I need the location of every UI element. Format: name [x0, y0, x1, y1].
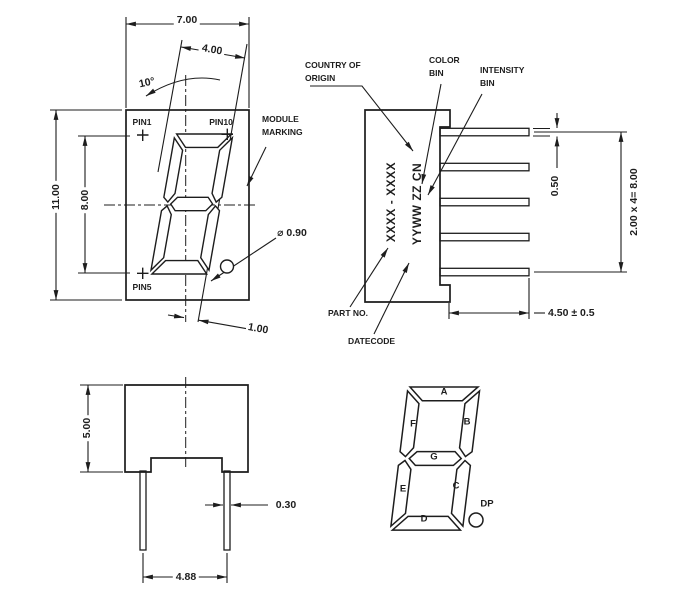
side-pin-3	[440, 198, 529, 206]
segment-c-shape	[450, 461, 471, 527]
dim-4-50	[449, 278, 545, 319]
segment-d-label: D	[421, 514, 428, 524]
dim-pitch	[534, 132, 627, 272]
segment-e-label: E	[400, 484, 406, 494]
front-dp-circle	[221, 260, 234, 273]
side-pins	[440, 128, 529, 275]
front-segment-d	[152, 261, 209, 274]
pin-length-dim-label: 4.50 ± 0.5	[548, 308, 595, 319]
dp-diameter-dim-label: ⌀ 0.90	[277, 228, 307, 239]
dim-1-00	[168, 315, 246, 329]
pin-pitch-dim-label: 2.00 x 4= 8.00	[629, 168, 640, 235]
color-bin-label-line2: BIN	[429, 69, 444, 78]
front-segment-a	[174, 134, 231, 147]
dim-7-00	[126, 17, 249, 108]
segment-b-label: B	[464, 417, 471, 427]
segment-f-label: F	[410, 419, 416, 429]
country-of-origin-label-line2: ORIGIN	[305, 74, 335, 83]
side-pin-5	[440, 268, 529, 276]
bottom-view	[80, 377, 268, 583]
bottom-pin-right	[224, 471, 230, 550]
bottom-body-outline	[125, 385, 248, 472]
pin1-label: PIN1	[133, 118, 152, 127]
depth-dim-label: 5.00	[82, 415, 93, 441]
module-marking-label-line2: MARKING	[262, 128, 303, 137]
pin5-label: PIN5	[133, 283, 152, 292]
pin-width-dim-label: 0.30	[276, 500, 296, 511]
front-segment-c	[199, 206, 221, 270]
front-view	[50, 17, 276, 329]
module-marking-leader	[247, 147, 266, 186]
segment-a-label: A	[441, 387, 448, 397]
country-of-origin-leader	[310, 86, 413, 151]
side-pin-4	[440, 233, 529, 241]
mechanical-drawing-seven-segment-display: 7.00 4.00 10° 11.00 8.00 PIN1 PIN10 PIN5…	[0, 0, 697, 613]
datecode-leader	[374, 263, 409, 334]
intensity-bin-label-line1: INTENSITY	[480, 66, 524, 75]
front-width-dim-label: 7.00	[174, 15, 200, 26]
front-height-dim-label: 11.00	[51, 181, 62, 213]
intensity-bin-label-line2: BIN	[480, 79, 495, 88]
bottom-pins	[140, 471, 230, 550]
part-number-marking-text: XXXX - XXXX	[385, 162, 397, 242]
datecode-marking-text: YYWW ZZ CN	[411, 163, 423, 245]
pin10-label: PIN10	[209, 118, 233, 127]
module-marking-label-line1: MODULE	[262, 115, 299, 124]
side-pin-1	[440, 128, 529, 136]
side-view	[310, 84, 627, 334]
part-no-leader	[350, 248, 388, 307]
color-bin-leader	[422, 84, 441, 184]
dp-label: DP	[480, 499, 493, 509]
segment-dp-circle	[469, 513, 483, 527]
segment-c-label: C	[453, 481, 460, 491]
segment-g-label: G	[430, 452, 437, 462]
side-body-outline	[365, 110, 450, 302]
side-pin-2	[440, 163, 529, 171]
front-segment-f	[163, 138, 185, 202]
datecode-label: DATECODE	[348, 337, 395, 346]
pin1-cross	[137, 130, 149, 142]
pin-spacing-dim-label: 4.88	[173, 572, 199, 583]
color-bin-label-line1: COLOR	[429, 56, 460, 65]
part-no-label: PART NO.	[328, 309, 368, 318]
pin-thickness-dim-label: 0.50	[550, 176, 561, 196]
front-segment-g	[170, 197, 214, 210]
bottom-pin-left	[140, 471, 146, 550]
front-display-digit	[150, 134, 233, 274]
pin-row-dim-label: 8.00	[80, 187, 91, 213]
country-of-origin-label-line1: COUNTRY OF	[305, 61, 361, 70]
dp-diameter-leader	[211, 238, 276, 281]
pin5-cross	[137, 268, 149, 279]
angle-arc	[146, 78, 220, 96]
dim-0-50	[533, 113, 557, 168]
